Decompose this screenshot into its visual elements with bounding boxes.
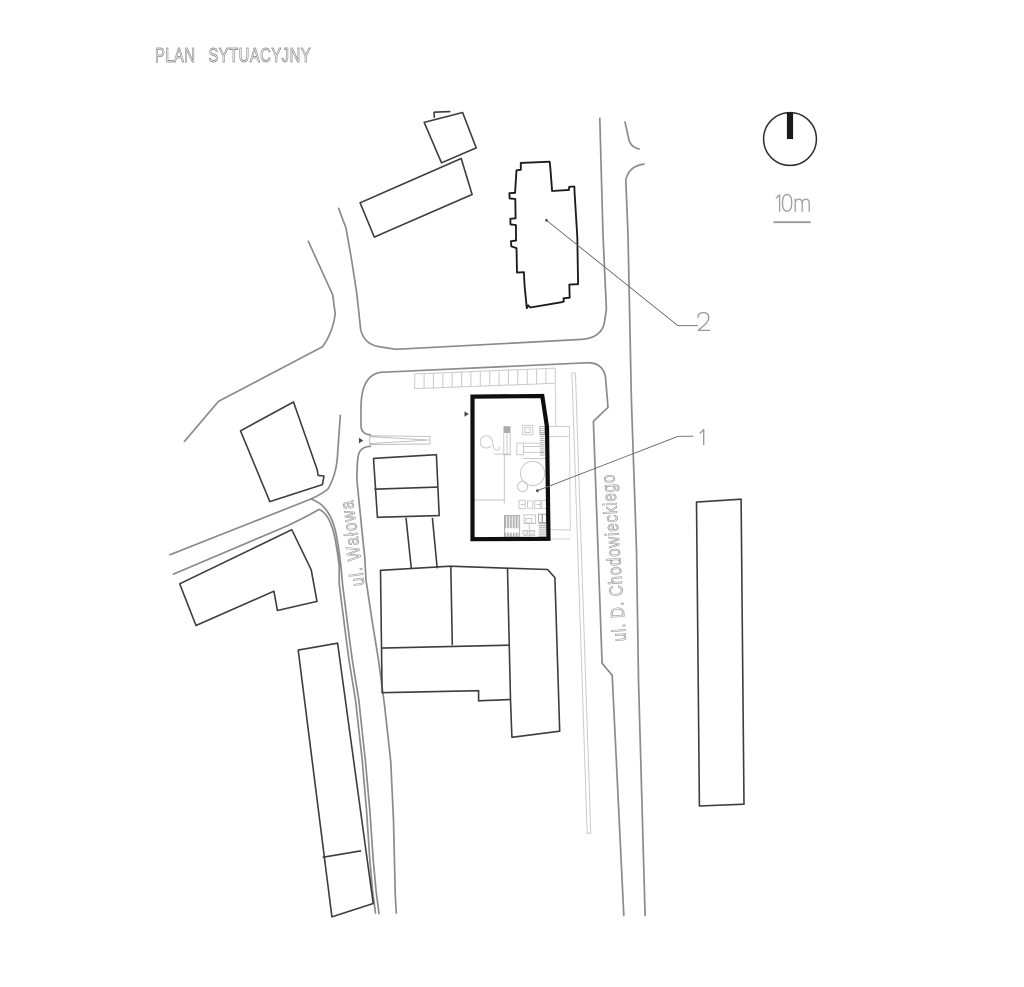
svg-text:PLAN SYTUACYJNY: PLAN SYTUACYJNY: [155, 44, 311, 67]
